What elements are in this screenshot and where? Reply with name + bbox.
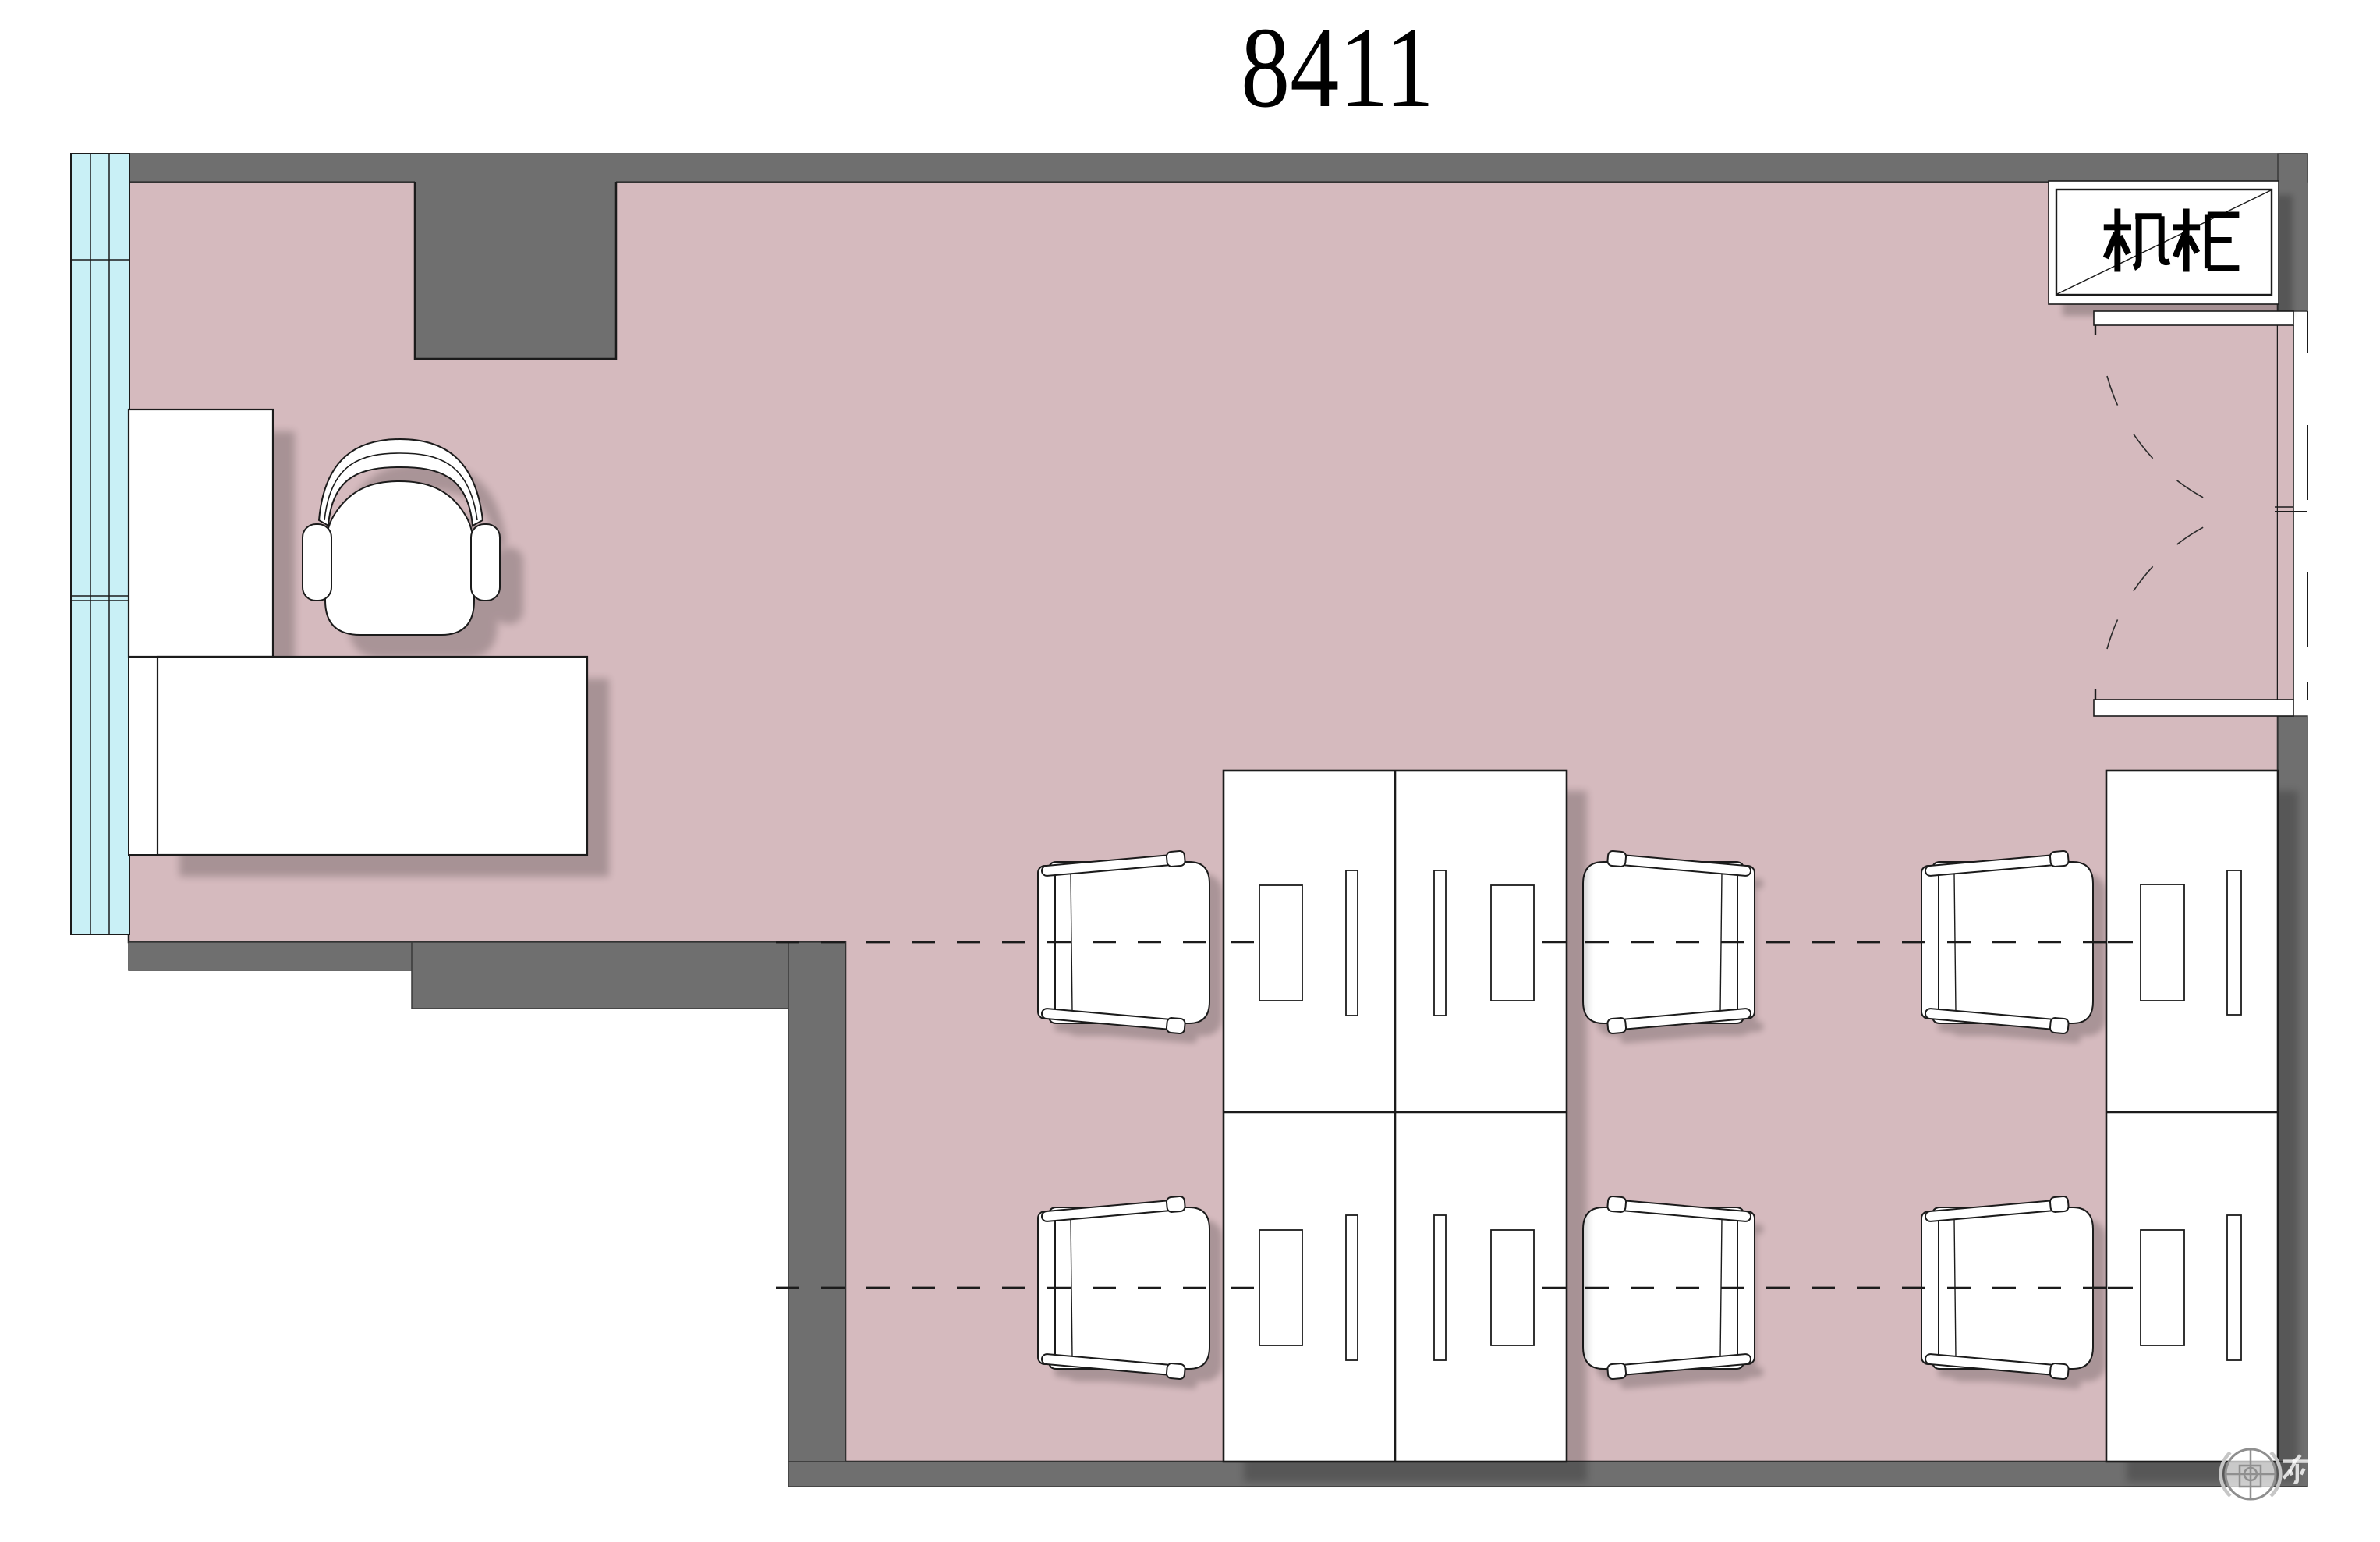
svg-text:8411: 8411: [1241, 4, 1434, 132]
